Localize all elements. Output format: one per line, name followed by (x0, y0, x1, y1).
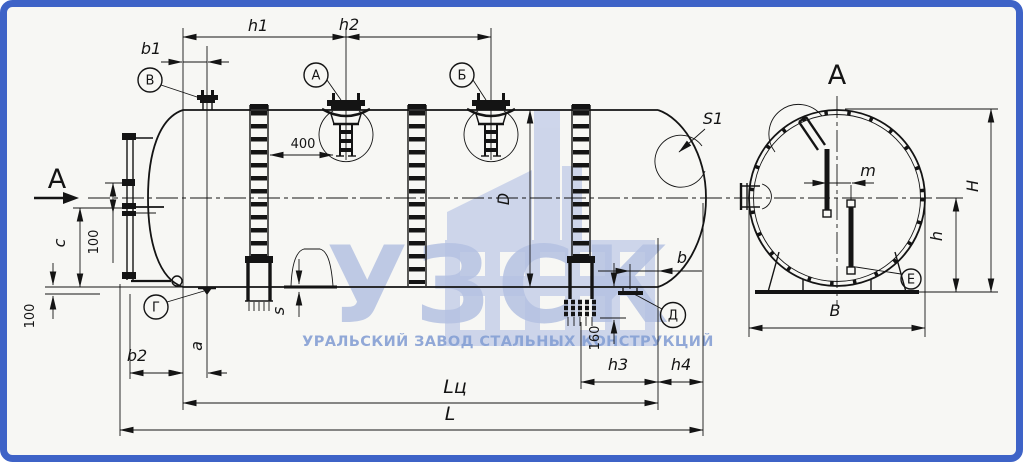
callout-d-label: Д (668, 309, 678, 324)
callout-g-label: Г (152, 301, 160, 316)
dim-htotal-label: H (963, 180, 982, 192)
callout-b-label: Б (458, 69, 467, 84)
dim-100-bottom-label: 100 (23, 304, 38, 329)
watermark-letters: УЗСК (326, 224, 675, 347)
dim-s-label: s (269, 307, 288, 315)
dim-h3-label: h3 (608, 355, 628, 374)
dim-m-label: m (860, 161, 876, 180)
dim-c-label: c (50, 238, 69, 247)
callout-e-label: Е (907, 273, 915, 288)
dim-400-label: 400 (291, 137, 316, 152)
dim-lc-label: Lц (443, 376, 467, 398)
dim-s1-label: S1 (703, 109, 723, 128)
dim-b-label: b (677, 248, 687, 267)
dim-h1-label: h1 (248, 16, 268, 35)
dim-100-top-label: 100 (87, 230, 102, 255)
dim-bwidth-label: B (830, 301, 841, 320)
dim-h4-label: h4 (671, 355, 691, 374)
watermark-tagline: УРАЛЬСКИЙ ЗАВОД СТАЛЬНЫХ КОНСТРУКЦИЙ (302, 333, 714, 350)
dim-hlow-label: h (927, 231, 946, 241)
dim-d-label: D (494, 193, 513, 205)
vessel-technical-drawing: УЗСК УРАЛЬСКИЙ ЗАВОД СТАЛЬНЫХ КОНСТРУКЦИ… (0, 0, 1023, 462)
dim-b1-label: b1 (141, 39, 161, 58)
dim-l-label: L (445, 403, 456, 425)
dim-b2-label: b2 (127, 346, 147, 365)
dim-a-label: a (187, 341, 206, 351)
callout-v-label: В (146, 74, 155, 89)
dim-h2-label: h2 (339, 15, 359, 34)
drawing-sheet: УЗСК УРАЛЬСКИЙ ЗАВОД СТАЛЬНЫХ КОНСТРУКЦИ… (0, 0, 1023, 462)
section-arrow-label: А (48, 164, 67, 195)
callout-a-label: А (312, 69, 321, 84)
dim-160-label: 160 (588, 326, 603, 351)
section-view-title: А (828, 60, 847, 91)
